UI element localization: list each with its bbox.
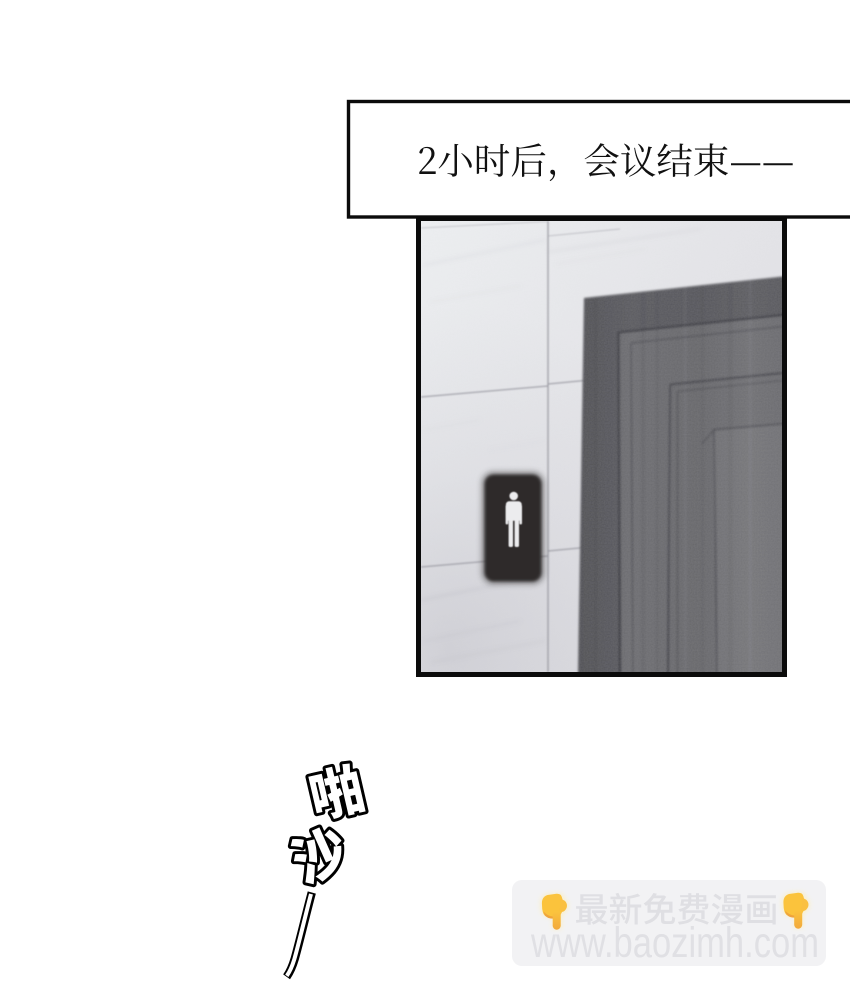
svg-text:www.baozimh.com: www.baozimh.com [530, 919, 819, 967]
